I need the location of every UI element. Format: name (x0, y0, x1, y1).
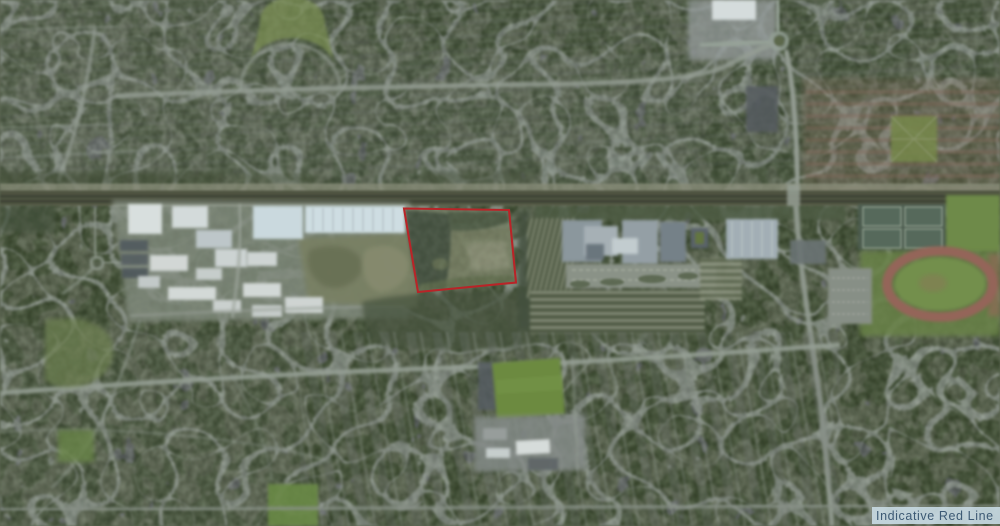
svg-text:Indicative Red Line: Indicative Red Line (876, 509, 994, 523)
